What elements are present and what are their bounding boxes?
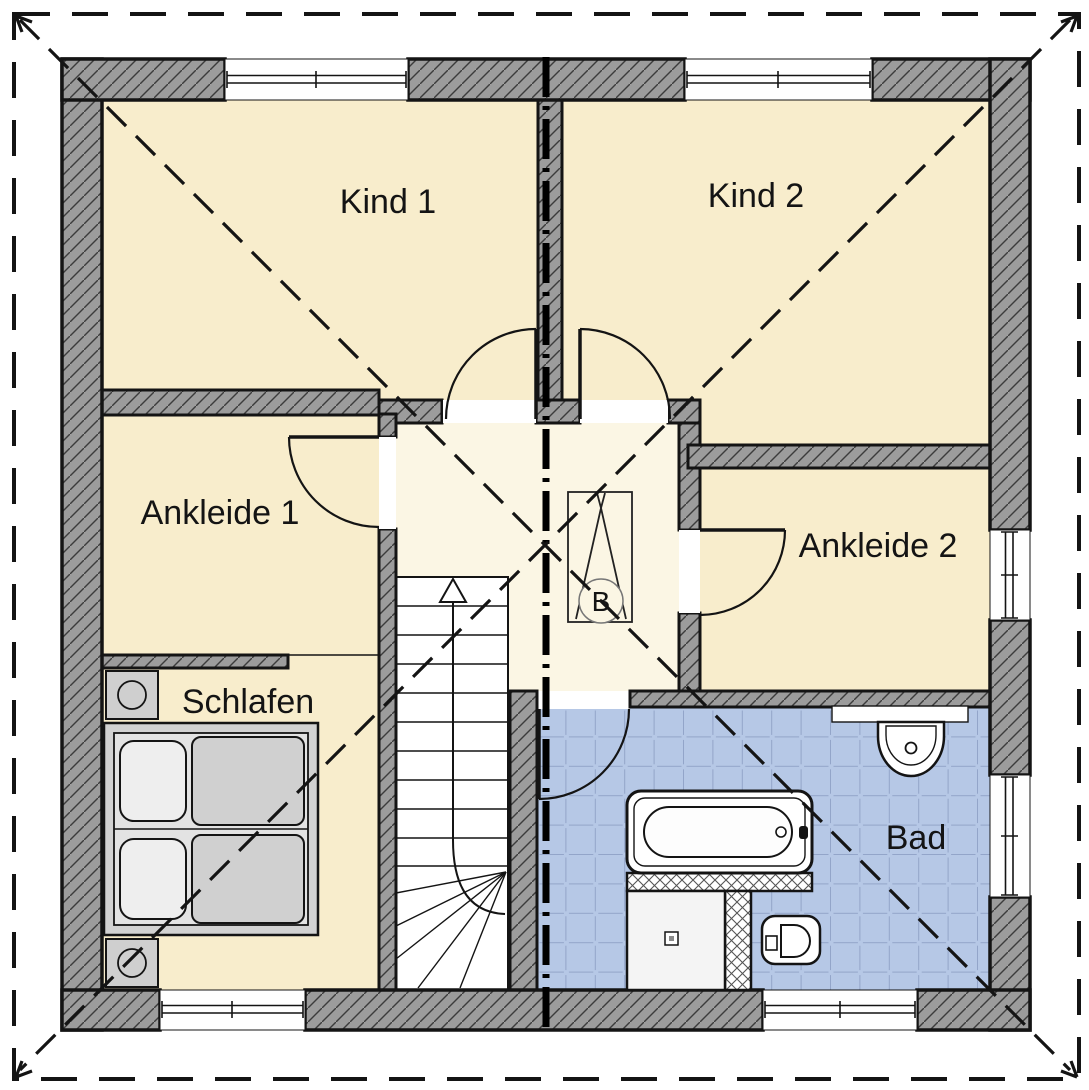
wall-ankleide2-bad xyxy=(630,691,990,707)
window-bad-bottom xyxy=(763,990,917,1030)
window-ankleide2 xyxy=(990,530,1030,620)
duvet-1 xyxy=(192,737,304,825)
wall-kind1-kind2 xyxy=(538,100,562,402)
shower xyxy=(627,891,725,990)
room-kind2-floor xyxy=(562,100,990,445)
floorplan-page: B Kind 1 Kind 2 Ankleide 1 Ankleide 2 Sc xyxy=(0,0,1089,1090)
window-schlafen xyxy=(160,990,305,1030)
label-bad: Bad xyxy=(886,819,947,857)
schlafen-passage-floor xyxy=(288,655,379,669)
wall-hall-top-right xyxy=(668,400,700,423)
nightstand-top xyxy=(106,671,158,719)
pillow-2 xyxy=(120,839,186,919)
toilet-flush xyxy=(766,936,777,950)
toilet-bowl xyxy=(781,925,810,957)
label-schlafen: Schlafen xyxy=(182,683,314,721)
bathtub xyxy=(627,791,812,873)
wall-pier-ankleide1-door xyxy=(379,414,396,437)
hip-arrow-bottom-left xyxy=(16,1061,32,1077)
nightstand-bottom xyxy=(106,939,158,987)
wall-outer-top-1 xyxy=(62,59,225,100)
opening-kind2 xyxy=(580,400,668,423)
tub-knee-wall xyxy=(627,873,812,891)
room-ankleide2-floor xyxy=(700,468,990,692)
sink-counter xyxy=(832,706,968,722)
tub-faucet xyxy=(799,826,808,839)
window-kind2 xyxy=(685,59,872,100)
opening-ankleide1 xyxy=(379,437,396,529)
window-bad-right xyxy=(990,775,1030,897)
opening-kind1 xyxy=(443,400,536,423)
shower-knee-wall xyxy=(725,891,751,990)
label-ankleide1: Ankleide 1 xyxy=(141,494,300,532)
floorplan-drawing: B Kind 1 Kind 2 Ankleide 1 Ankleide 2 Sc xyxy=(0,0,1089,1090)
tub-drain xyxy=(776,827,786,837)
wall-outer-bottom-3 xyxy=(917,990,1030,1030)
wall-outer-bottom-2 xyxy=(305,990,763,1030)
wall-kind2-ankleide2 xyxy=(688,445,990,468)
label-ankleide2: Ankleide 2 xyxy=(799,527,958,565)
wall-stair-bad xyxy=(510,691,537,990)
wall-outer-right-2 xyxy=(990,620,1030,775)
room-ankleide1-floor xyxy=(102,415,379,655)
wall-outer-left xyxy=(62,59,102,1030)
opening-ankleide2 xyxy=(679,530,700,613)
double-bed xyxy=(104,723,318,935)
bad-door-threshold xyxy=(537,691,630,709)
wall-hall-ankleide2-upper xyxy=(679,423,700,530)
label-kind1: Kind 1 xyxy=(340,183,436,221)
sink-drain xyxy=(906,743,917,754)
hip-arrow-top-right xyxy=(1061,16,1077,32)
shower-drain-dot xyxy=(669,936,674,941)
label-kind2: Kind 2 xyxy=(708,177,804,215)
wall-hall-ankleide2-lower xyxy=(679,613,700,692)
toilet xyxy=(762,916,820,964)
window-kind1 xyxy=(225,59,408,100)
wall-kind1-ankleide1 xyxy=(102,390,379,415)
wall-schlafen-stair xyxy=(379,529,396,990)
duvet-2 xyxy=(192,835,304,923)
wall-ankleide1-schlafen xyxy=(102,655,288,668)
wall-outer-right-1 xyxy=(990,59,1030,530)
pillow-1 xyxy=(120,741,186,821)
wall-outer-bottom-1 xyxy=(62,990,160,1030)
